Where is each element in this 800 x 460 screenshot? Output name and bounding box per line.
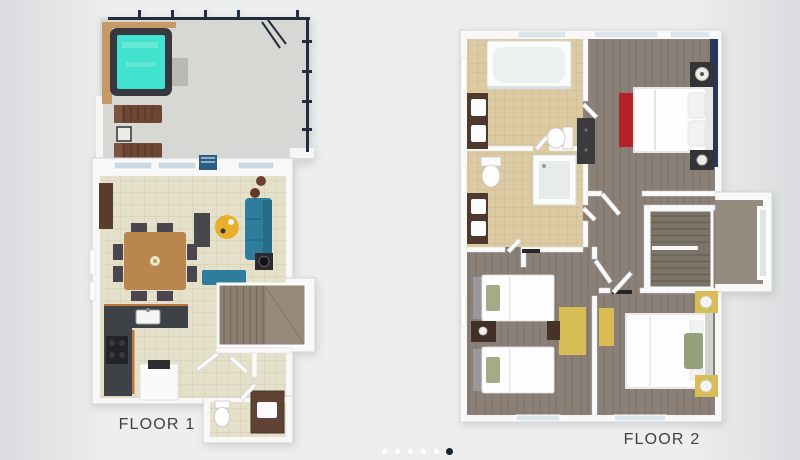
- carousel-dot-3[interactable]: [407, 448, 414, 455]
- twin-room-nightstand: [471, 321, 496, 342]
- bathroom-1-vanity: [467, 93, 488, 149]
- bathroom-2-toilet: [481, 157, 501, 187]
- powder-room-toilet: [215, 401, 231, 427]
- round-chair: [215, 215, 239, 239]
- powder-room-vanity: [251, 391, 284, 433]
- slide-floor-2[interactable]: [455, 24, 775, 424]
- dining-table: [124, 232, 186, 290]
- carousel-dot-5[interactable]: [433, 448, 440, 455]
- bathroom-2-vanity: [467, 193, 488, 244]
- carousel-dot-1[interactable]: [381, 448, 388, 455]
- bathroom-1-toilet: [547, 127, 573, 149]
- floorplan-carousel: FLOOR 1: [0, 0, 800, 460]
- hot-tub: [110, 28, 172, 96]
- stairs-floor-1: [218, 284, 306, 346]
- twin-room-tv: [522, 249, 540, 253]
- stove: [106, 336, 128, 364]
- slide-floor-1[interactable]: [85, 0, 320, 448]
- carousel-dot-2[interactable]: [394, 448, 401, 455]
- carousel-dot-4[interactable]: [420, 448, 427, 455]
- stairs-floor-2: [649, 210, 712, 288]
- sofa: [245, 198, 272, 260]
- tv-stand: [194, 213, 210, 247]
- guest-room-dresser: [599, 308, 614, 346]
- twin-bed-2: [473, 347, 554, 393]
- floor-2-label: FLOOR 2: [607, 431, 717, 449]
- master-dresser: [577, 118, 595, 164]
- shower: [533, 155, 576, 205]
- sideboard: [99, 183, 113, 229]
- fireplace: [255, 253, 273, 270]
- bathtub: [487, 41, 571, 89]
- carousel-dots: [381, 448, 453, 455]
- carousel-dot-6[interactable]: [446, 448, 453, 455]
- floor-1-plan-image: [85, 0, 320, 448]
- stair-landing-floor: [715, 200, 763, 284]
- foot-of-bed-bench: [619, 93, 633, 147]
- twin-bed-1: [473, 275, 554, 321]
- floor-1-label: FLOOR 1: [102, 416, 212, 434]
- floor-2-plan-image: [455, 24, 775, 424]
- deck-side-table: [117, 127, 131, 141]
- kitchen-island: [140, 360, 178, 400]
- master-bed: [633, 87, 713, 153]
